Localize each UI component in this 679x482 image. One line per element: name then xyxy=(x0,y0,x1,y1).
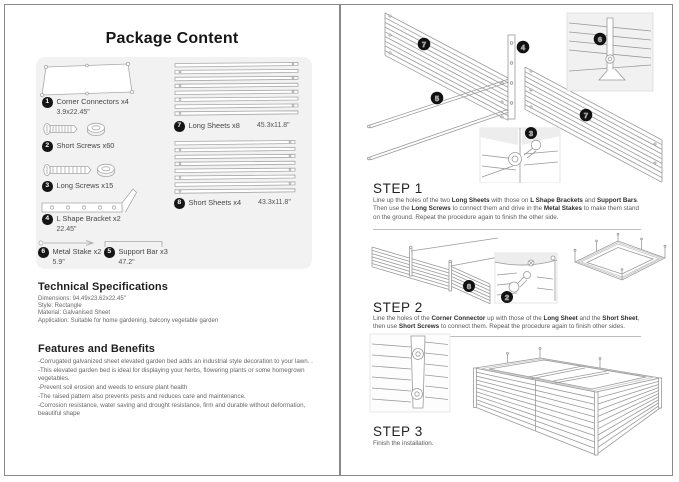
text-segment: and xyxy=(583,197,597,204)
item-number-badge: 6 xyxy=(38,247,49,258)
text-segment-bold: Metal Stakes xyxy=(544,205,582,212)
inset-long-screw xyxy=(480,128,560,183)
feature-bullet: -The raised pattern also prevents pests … xyxy=(38,393,322,402)
l-bracket-icon xyxy=(42,189,137,212)
feature-bullet: -Corrugated galvanized sheet elevated ga… xyxy=(38,358,322,367)
inset-corner-connector xyxy=(370,334,450,412)
item-dimension: 47.2" xyxy=(119,258,168,267)
spec-style: Style: Rectangle xyxy=(38,303,318,310)
item-number-badge: 1 xyxy=(42,97,53,108)
step3-description: Finish the installation. xyxy=(373,440,645,448)
step3-title: STEP 3 xyxy=(373,424,423,439)
item-dimension: 3.9x22.45" xyxy=(57,108,129,117)
item-label: Support Bar x3 xyxy=(119,247,168,257)
step2-title: STEP 2 xyxy=(373,300,423,315)
item-label: Long Screws x15 xyxy=(57,181,114,191)
item-number-badge: 4 xyxy=(42,214,53,225)
text-segment: Line up the holes of the two xyxy=(373,197,452,204)
svg-text:3: 3 xyxy=(529,129,533,138)
step2-illustration: 8 2 xyxy=(350,233,675,305)
part-label-7-left: 7 xyxy=(418,38,431,51)
short-screw-icon xyxy=(44,123,105,135)
item-number-badge: 3 xyxy=(42,181,53,192)
feature-bullet: -Prevent soil erosion and weeds to ensur… xyxy=(38,384,322,393)
page-title: Package Content xyxy=(4,30,340,48)
svg-text:7: 7 xyxy=(584,111,588,120)
item-number-badge: 5 xyxy=(104,247,115,258)
svg-text:2: 2 xyxy=(505,293,509,302)
step3-illustration xyxy=(350,330,675,470)
tech-specs-title: Technical Specifications xyxy=(38,281,168,293)
features-list: -Corrugated galvanized sheet elevated ga… xyxy=(38,358,322,419)
text-segment-bold: Short Sheet xyxy=(602,315,637,322)
text-segment-bold: L Shape Brackets xyxy=(530,197,583,204)
section-divider xyxy=(373,229,641,230)
package-item-long-sheets: 7 Long Sheets x8 45.3x11.8" xyxy=(174,121,290,132)
package-icons xyxy=(36,57,312,269)
item-dimension: 22.45" xyxy=(57,225,121,234)
short-sheets-icon xyxy=(175,141,295,194)
assembled-frame-art xyxy=(574,233,666,280)
package-item-l-bracket: 4 L Shape Bracket x2 22.45" xyxy=(42,214,121,234)
text-segment-bold: Corner Connector xyxy=(431,315,485,322)
text-segment: up with those of the xyxy=(485,315,543,322)
text-segment: Finish the installation. xyxy=(373,440,434,447)
spec-application: Application: Suitable for home gardening… xyxy=(38,318,318,325)
part-label-8: 8 xyxy=(463,280,475,292)
corner-connector-icon xyxy=(40,62,133,96)
part-label-3: 3 xyxy=(525,127,537,139)
part-label-5: 5 xyxy=(431,92,444,105)
inset-metal-stake xyxy=(567,13,653,91)
item-dimension: 45.3x11.8" xyxy=(257,121,290,131)
finished-bed-art xyxy=(474,347,662,455)
tech-specs-list: Dimensions: 94.49x23.62x22.45" Style: Re… xyxy=(38,296,318,325)
item-label: Metal Stake x2 xyxy=(53,247,102,257)
package-item-corner-connectors: 1 Corner Connectors x4 3.9x22.45" xyxy=(42,97,129,117)
spec-material: Material: Galvanised Sheet xyxy=(38,310,318,317)
package-item-short-screws: 2 Short Screws x60 xyxy=(42,141,114,152)
item-label: L Shape Bracket x2 xyxy=(57,214,121,224)
feature-bullet: -This elevated garden bed is ideal for d… xyxy=(38,367,322,384)
column-divider xyxy=(339,4,341,476)
text-segment-bold: Support Bars xyxy=(597,197,637,204)
text-segment: to connect them and drive in the xyxy=(451,205,544,212)
svg-text:5: 5 xyxy=(435,94,439,103)
part-label-4: 4 xyxy=(517,41,530,54)
part-label-6: 6 xyxy=(594,33,607,46)
svg-text:7: 7 xyxy=(422,40,426,49)
item-dimension: 5.9" xyxy=(53,258,102,267)
text-segment-bold: Long Sheets xyxy=(452,197,490,204)
instruction-sheet: Package Content xyxy=(0,0,679,482)
text-segment-bold: Long Sheet xyxy=(543,315,577,322)
feature-bullet: -Corrosion resistance, water saving and … xyxy=(38,402,322,419)
item-label: Short Sheets x4 xyxy=(189,198,242,208)
item-label: Long Sheets x8 xyxy=(189,121,240,131)
item-label: Short Screws x60 xyxy=(57,141,115,151)
item-number-badge: 8 xyxy=(174,198,185,209)
features-title: Features and Benefits xyxy=(38,343,155,355)
text-segment-bold: Long Screws xyxy=(412,205,451,212)
item-label: Corner Connectors x4 xyxy=(57,97,129,107)
item-number-badge: 7 xyxy=(174,121,185,132)
package-item-support-bar: 5 Support Bar x3 47.2" xyxy=(104,247,168,267)
svg-text:8: 8 xyxy=(467,282,471,291)
part-label-7-right: 7 xyxy=(580,109,593,122)
svg-text:6: 6 xyxy=(598,35,602,44)
l-bracket-strip-art xyxy=(508,35,515,119)
metal-stake-icon xyxy=(39,241,93,246)
package-item-short-sheets: 8 Short Sheets x4 43.3x11.8" xyxy=(174,198,291,209)
text-segment: Line the holes of the xyxy=(373,315,431,322)
step1-description: Line up the holes of the two Long Sheets… xyxy=(373,197,645,222)
step1-title: STEP 1 xyxy=(373,181,423,196)
long-screw-icon xyxy=(44,164,115,176)
text-segment: and the xyxy=(578,315,603,322)
long-sheets-icon xyxy=(175,63,298,116)
item-dimension: 43.3x11.8" xyxy=(258,198,291,208)
text-segment: with those on xyxy=(490,197,531,204)
item-number-badge: 2 xyxy=(42,141,53,152)
package-item-long-screws: 3 Long Screws x15 xyxy=(42,181,113,192)
step1-illustration: 7 4 6 5 7 3 xyxy=(345,5,675,183)
part-label-2: 2 xyxy=(501,291,513,303)
spec-dimensions: Dimensions: 94.49x23.62x22.45" xyxy=(38,296,318,303)
package-item-metal-stake: 6 Metal Stake x2 5.9" xyxy=(38,247,101,267)
long-sheet-left-art xyxy=(385,13,508,120)
